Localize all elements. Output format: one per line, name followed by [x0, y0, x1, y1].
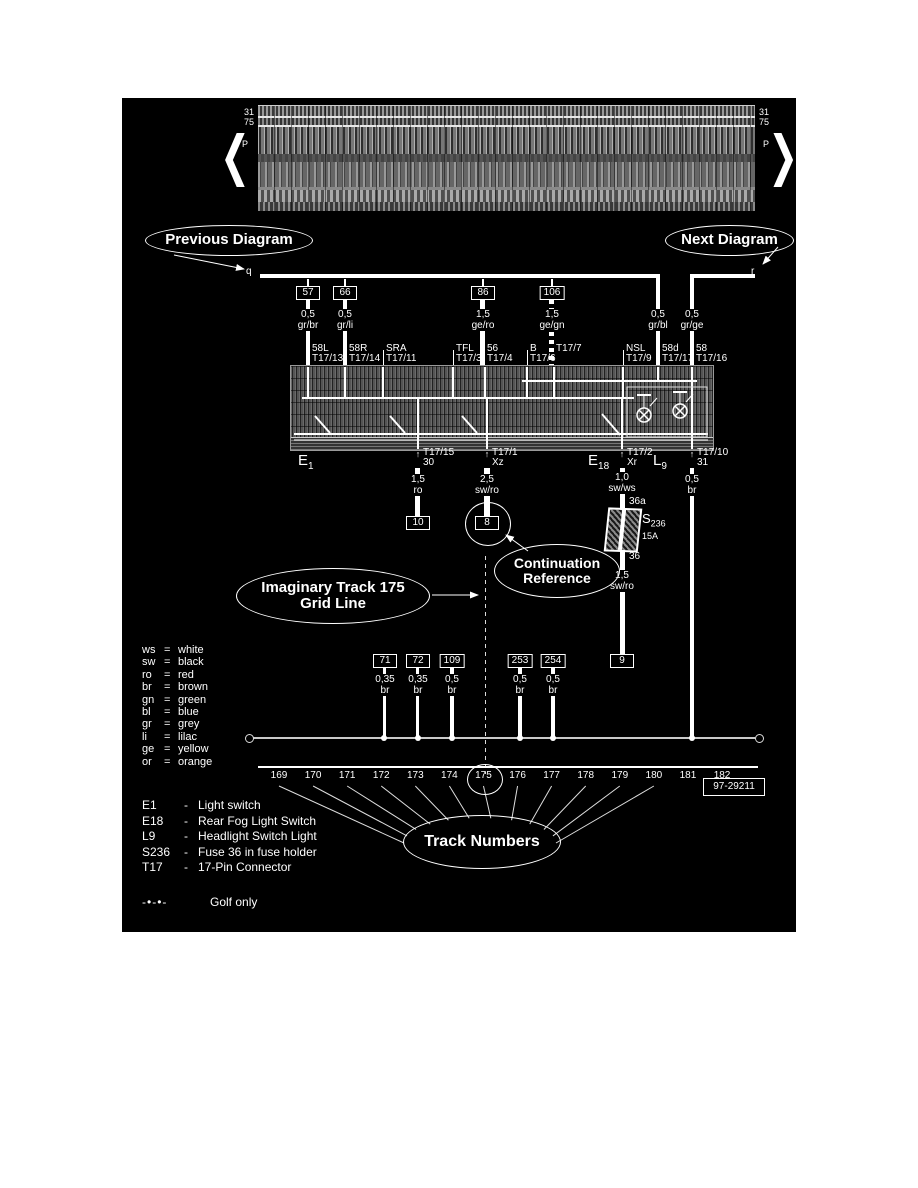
equals-sign: = [164, 694, 178, 706]
terminal-arrow-icon: ↑ [306, 353, 311, 362]
terminal-pin: T17/14 [349, 354, 380, 364]
color-legend-row: li=lilac [142, 731, 212, 743]
component-id: L9 [142, 829, 184, 845]
previous-page-chevron-icon: ❮ [220, 129, 250, 183]
color-legend-row: br=brown [142, 681, 212, 693]
terminal-pin: T17/13 [312, 354, 343, 364]
wire-junction-dot [517, 735, 523, 741]
band-terminal-31-left: 31 [230, 107, 254, 117]
color-code: ge [142, 743, 164, 755]
ground-ref-109: 109 [440, 654, 465, 668]
track-fan-line [556, 786, 654, 843]
wire-junction-dot [449, 735, 455, 741]
component-label-l9: L9 [653, 452, 667, 472]
band-busline-31 [258, 116, 755, 118]
wire-size: 1,5 [539, 309, 564, 320]
component-main: E [588, 452, 598, 469]
terminal-arrow-icon: ↑ [690, 353, 695, 362]
terminal-pin: T17/3 [456, 354, 482, 364]
separator: - [184, 814, 198, 830]
terminal-pin: T17/11 [386, 354, 416, 364]
wire-color: gr/li [337, 320, 353, 331]
bus-line-right [690, 274, 755, 278]
equals-sign: = [164, 731, 178, 743]
track-number: 173 [407, 770, 424, 781]
ref-stub [307, 279, 309, 286]
track-175-highlight-circle [467, 764, 503, 795]
ref-stub [482, 279, 484, 286]
continuation-marker-r: r [751, 267, 754, 277]
color-legend-row: sw=black [142, 656, 212, 668]
track-fan-line [544, 786, 586, 829]
component-label-e1: E1 [298, 452, 314, 472]
track-fan-line [512, 786, 518, 820]
bus-line-left [260, 274, 660, 278]
color-legend-row: ws=white [142, 644, 212, 656]
component-sub: 9 [661, 461, 667, 472]
wire-31-br [690, 468, 694, 738]
component-id: S236 [142, 845, 184, 861]
color-name: white [178, 644, 204, 656]
component-legend-row: E1-Light switch [142, 798, 317, 814]
ground-ref-253: 253 [508, 654, 533, 668]
track-number: 181 [680, 770, 697, 781]
track-number: 180 [646, 770, 663, 781]
wire-color: br [408, 685, 427, 696]
equals-sign: = [164, 681, 178, 693]
terminal-arrow-icon: ↑ [416, 450, 421, 459]
next-page-chevron-icon: ❯ [768, 129, 796, 183]
color-name: brown [178, 681, 208, 693]
wiring-diagram-panel: 31 75 P 31 75 P ❮ ❯ Previous Diagram Nex… [122, 98, 796, 932]
color-name: orange [178, 756, 212, 768]
track-number: 174 [441, 770, 458, 781]
continuation-marker-q: q [246, 267, 252, 277]
track-fan-line [381, 786, 430, 824]
wire-size: 0,5 [337, 309, 353, 320]
terminal-stub [623, 350, 624, 365]
track-number: 179 [611, 770, 628, 781]
track-number: 169 [271, 770, 288, 781]
ground-ref-254: 254 [541, 654, 566, 668]
component-description: Rear Fog Light Switch [198, 814, 316, 830]
color-code: sw [142, 656, 164, 668]
wire-color: sw/ws [608, 483, 635, 494]
terminal-pin: T17/7 [556, 344, 582, 354]
fuse-pin-36a: 36a [629, 497, 646, 507]
band-texture-row [258, 118, 755, 125]
band-texture-row [258, 106, 755, 116]
previous-diagram-callout: Previous Diagram [145, 225, 313, 256]
imaginary-track-callout: Imaginary Track 175 Grid Line [236, 568, 430, 624]
continuation-ref-8: 8 [475, 516, 499, 530]
imaginary-callout-line2: Grid Line [300, 596, 366, 613]
component-description: 17-Pin Connector [198, 860, 291, 876]
wire-junction-dot [415, 735, 421, 741]
band-texture-row [258, 187, 755, 190]
terminal-arrow-icon: ↑ [550, 353, 555, 362]
color-code: ro [142, 669, 164, 681]
golf-only-symbol: -•-•- [142, 895, 167, 909]
miniature-diagram-band [258, 105, 755, 211]
wire-size: 0,5 [298, 309, 319, 320]
wire-size: 0,35 [375, 674, 394, 685]
equals-sign: = [164, 743, 178, 755]
terminal-pin: 31 [697, 458, 728, 468]
wire-size: 0,5 [546, 674, 560, 685]
wire-size: 1,5 [411, 474, 425, 485]
color-name: red [178, 669, 194, 681]
track-fan-line [313, 786, 407, 836]
ground-bus-end-circle-left [245, 734, 254, 743]
equals-sign: = [164, 718, 178, 730]
color-code: li [142, 731, 164, 743]
band-terminal-31-right: 31 [759, 107, 769, 117]
fuse-symbol-s236 [604, 507, 643, 552]
color-code: gn [142, 694, 164, 706]
terminal-arrow-icon: ↑ [620, 450, 625, 459]
next-diagram-label: Next Diagram [681, 232, 778, 249]
track-scale-line [258, 766, 758, 768]
band-texture-row [258, 162, 755, 187]
color-name: grey [178, 718, 199, 730]
wire-color: br [375, 685, 394, 696]
fuse-sub: 236 [651, 519, 666, 529]
terminal-arrow-icon: ↑ [343, 353, 348, 362]
wire-junction-dot [550, 735, 556, 741]
separator: - [184, 798, 198, 814]
imaginary-callout-line1: Imaginary Track 175 [261, 580, 404, 597]
terminal-pin: Xr [627, 458, 653, 468]
previous-diagram-arrow [174, 255, 244, 269]
wire-color: br [546, 685, 560, 696]
terminal-stub [453, 350, 454, 365]
continuation-ref-9: 9 [610, 654, 634, 668]
track-number: 170 [305, 770, 322, 781]
continuation-ref-106: 106 [540, 286, 565, 300]
track-number: 171 [339, 770, 356, 781]
wire-color: br [685, 485, 699, 496]
track-numbers-label: Track Numbers [424, 833, 540, 851]
ref-stub [551, 279, 553, 286]
wire-size: 0,5 [681, 309, 704, 320]
band-texture-row [258, 154, 755, 162]
diagram-part-number: 97-29211 [703, 778, 765, 796]
wire-size: 0,5 [648, 309, 667, 320]
wire-color: ge/gn [539, 320, 564, 331]
component-main: E [298, 452, 308, 469]
ground-bus-line [252, 737, 755, 739]
color-legend-row: ge=yellow [142, 743, 212, 755]
color-legend-row: gn=green [142, 694, 212, 706]
track-number: 177 [543, 770, 560, 781]
wire-color: br [445, 685, 459, 696]
color-legend-row: gr=grey [142, 718, 212, 730]
track-fan-line [530, 786, 552, 824]
equals-sign: = [164, 656, 178, 668]
terminal-arrow-icon: ↑ [485, 450, 490, 459]
track-number: 176 [509, 770, 526, 781]
terminal-pin: T17/9 [626, 354, 652, 364]
golf-only-label: Golf only [210, 895, 257, 909]
color-name: green [178, 694, 206, 706]
wire-fuse-swro [620, 550, 625, 656]
track-numbers-callout: Track Numbers [403, 815, 561, 869]
band-busline-75 [258, 125, 755, 127]
document-page: 31 75 P 31 75 P ❮ ❯ Previous Diagram Nex… [0, 0, 918, 1188]
ground-bus-end-circle-right [755, 734, 764, 743]
component-id: T17 [142, 860, 184, 876]
wire-color: ro [411, 485, 425, 496]
next-diagram-callout: Next Diagram [665, 225, 794, 256]
continuation-ref-10: 10 [406, 516, 430, 530]
color-code: bl [142, 706, 164, 718]
continuation-ref-57: 57 [296, 286, 320, 300]
terminal-stub [383, 350, 384, 365]
component-legend-row: L9-Headlight Switch Light [142, 829, 317, 845]
component-id: E18 [142, 814, 184, 830]
component-label-e18: E18 [588, 452, 609, 472]
color-code: gr [142, 718, 164, 730]
terminal-pin: T17/17 [662, 354, 693, 364]
wire-size: 1,0 [608, 472, 635, 483]
separator: - [184, 845, 198, 861]
fuse-main: S [642, 511, 651, 526]
separator: - [184, 829, 198, 845]
component-sub: 18 [598, 461, 609, 472]
component-legend: E1-Light switchE18-Rear Fog Light Switch… [142, 798, 317, 876]
color-legend-row: bl=blue [142, 706, 212, 718]
component-legend-row: E18-Rear Fog Light Switch [142, 814, 317, 830]
color-code: br [142, 681, 164, 693]
terminal-arrow-icon: ↑ [481, 353, 486, 362]
track-fan-line [449, 786, 469, 818]
color-name: lilac [178, 731, 197, 743]
wire-size: 1,5 [472, 309, 495, 320]
wire-color-legend: ws=whitesw=blackro=redbr=browngn=greenbl… [142, 644, 212, 768]
equals-sign: = [164, 706, 178, 718]
light-switch-component-box [290, 365, 714, 451]
component-id: E1 [142, 798, 184, 814]
wire-color: sw/ro [475, 485, 499, 496]
ref-stub [344, 279, 346, 286]
continuation-ref-86: 86 [471, 286, 495, 300]
imaginary-grid-line-175 [485, 556, 486, 774]
wire-size: 0,5 [685, 474, 699, 485]
band-texture-row [258, 190, 755, 202]
track-fan-line [415, 786, 448, 820]
continuation-reference-callout: Continuation Reference [494, 544, 620, 598]
component-legend-row: T17-17-Pin Connector [142, 860, 317, 876]
wire-junction-dot [381, 735, 387, 741]
color-code: or [142, 756, 164, 768]
component-sub: 1 [308, 461, 314, 472]
terminal-arrow-icon: ↑ [656, 353, 661, 362]
wire-color: gr/bl [648, 320, 667, 331]
color-name: black [178, 656, 204, 668]
color-legend-row: ro=red [142, 669, 212, 681]
fuse-label: S23615A [642, 513, 666, 542]
wire-size: 0,35 [408, 674, 427, 685]
wire-color: br [513, 685, 527, 696]
wire-color: gr/br [298, 320, 319, 331]
terminal-pin: 30 [423, 458, 454, 468]
equals-sign: = [164, 756, 178, 768]
band-texture-row [258, 202, 755, 211]
wire-size: 0,5 [445, 674, 459, 685]
band-texture-row [258, 127, 755, 154]
wire-size: 0,5 [513, 674, 527, 685]
continuation-ref-66: 66 [333, 286, 357, 300]
color-name: yellow [178, 743, 209, 755]
color-legend-row: or=orange [142, 756, 212, 768]
terminal-pin: T17/16 [696, 354, 727, 364]
fuse-pin-36: 36 [629, 552, 640, 562]
previous-diagram-label: Previous Diagram [165, 232, 293, 249]
terminal-stub [527, 350, 528, 365]
fuse-arrow-icon: ↑ [620, 497, 625, 506]
track-number: 178 [577, 770, 594, 781]
wire-size: 2,5 [475, 474, 499, 485]
terminal-arrow-icon: ↑ [690, 450, 695, 459]
fuse-arrow-icon: ↓ [620, 551, 625, 560]
color-code: ws [142, 644, 164, 656]
fuse-amps: 15A [642, 530, 666, 542]
terminal-pin: T17/4 [487, 354, 513, 364]
color-name: blue [178, 706, 199, 718]
wire-color: gr/ge [681, 320, 704, 331]
wire-junction-dot [689, 735, 695, 741]
track-number: 172 [373, 770, 390, 781]
track-fan-line [553, 786, 620, 836]
equals-sign: = [164, 644, 178, 656]
component-description: Headlight Switch Light [198, 829, 317, 845]
equals-sign: = [164, 669, 178, 681]
track-fan-line [347, 786, 416, 829]
continuation-callout-line2: Reference [523, 571, 591, 586]
terminal-pin: Xz [492, 458, 518, 468]
component-description: Fuse 36 in fuse holder [198, 845, 317, 861]
separator: - [184, 860, 198, 876]
ground-ref-71: 71 [373, 654, 397, 668]
component-legend-row: S236-Fuse 36 in fuse holder [142, 845, 317, 861]
wire-color: ge/ro [472, 320, 495, 331]
continuation-callout-line1: Continuation [514, 556, 600, 571]
ground-ref-72: 72 [406, 654, 430, 668]
component-description: Light switch [198, 798, 261, 814]
